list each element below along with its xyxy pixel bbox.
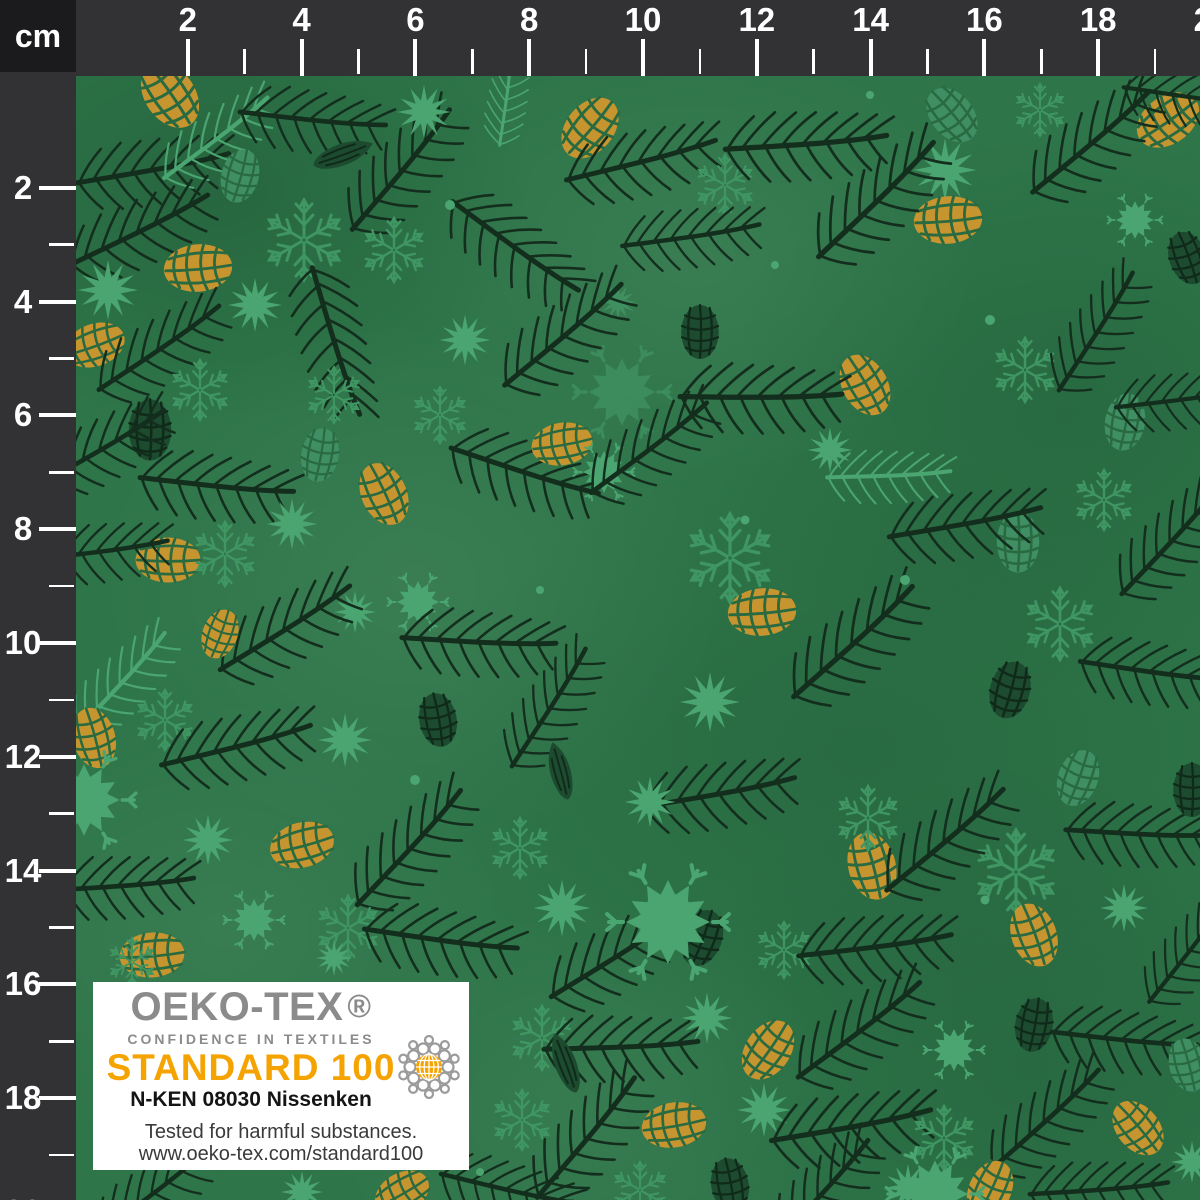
- motif-co: [76, 703, 122, 773]
- motif-fl: [1075, 470, 1134, 530]
- ruler-number: 18: [1063, 1, 1133, 39]
- motif-dt: [900, 575, 910, 585]
- motif-gr: [224, 892, 285, 949]
- motif-dt: [866, 91, 874, 99]
- motif-gr: [573, 347, 671, 438]
- motif-br: [822, 418, 962, 533]
- logo-loop: [409, 1085, 417, 1093]
- ruler-top: 2468101214161820: [0, 0, 1200, 76]
- ruler-tick-minor: [1040, 49, 1043, 74]
- ruler-tick-minor: [49, 1154, 74, 1157]
- motif-st: [440, 315, 491, 366]
- motif-co: [829, 346, 900, 425]
- motif-st: [1100, 884, 1148, 932]
- motif-br: [862, 769, 1035, 910]
- certification-label: OEKO-TEX® CONFIDENCE IN TEXTILES STANDAR…: [93, 982, 469, 1170]
- logo-loop: [451, 1071, 459, 1079]
- motif-co: [550, 87, 630, 170]
- motif-co: [1161, 226, 1200, 290]
- ruler-tick-minor: [471, 49, 474, 74]
- ruler-tick-minor: [926, 49, 929, 74]
- motif-br: [778, 962, 949, 1096]
- ruler-number: 8: [0, 510, 46, 548]
- motif-co: [912, 193, 984, 246]
- motif-fl: [194, 522, 257, 586]
- ruler-number: 4: [0, 283, 46, 321]
- ruler-tick-major: [641, 39, 645, 76]
- motif-fl: [696, 155, 755, 215]
- logo-loop: [399, 1055, 407, 1063]
- ruler-number: 10: [0, 624, 46, 662]
- motif-co: [1102, 1091, 1174, 1165]
- logo-loop: [441, 1041, 449, 1049]
- standard-title: STANDARD 100: [93, 1047, 409, 1089]
- motif-fl: [613, 1162, 668, 1200]
- motif-st: [267, 499, 318, 550]
- motif-co: [983, 657, 1037, 723]
- motif-dt: [985, 315, 995, 325]
- motif-co: [681, 305, 719, 359]
- motif-br: [1018, 255, 1180, 405]
- brand-name: OEKO-TEX: [131, 985, 344, 1029]
- ruler-tick-major: [413, 39, 417, 76]
- ruler-number: 14: [0, 852, 46, 890]
- motif-fl: [1015, 84, 1066, 136]
- ruler-number: 16: [949, 1, 1019, 39]
- ruler-tick-minor: [49, 926, 74, 929]
- ruler-tick-minor: [812, 49, 815, 74]
- logo-loop: [429, 1080, 440, 1091]
- motif-gr: [1108, 194, 1163, 245]
- logo-loop: [441, 1085, 449, 1093]
- ruler-number: 4: [267, 1, 337, 39]
- ruler-tick-major: [982, 39, 986, 76]
- brand-title: OEKO-TEX®: [93, 985, 409, 1030]
- motif-fl: [363, 218, 426, 282]
- logo-loop: [451, 1055, 459, 1063]
- motif-gr: [76, 752, 136, 849]
- logo-loop: [408, 1073, 419, 1084]
- ruler-number: 6: [0, 396, 46, 434]
- motif-co: [1173, 763, 1200, 817]
- motif-st: [334, 591, 376, 633]
- motif-co: [916, 78, 988, 152]
- logo-loop: [399, 1071, 407, 1079]
- ruler-number: 10: [608, 1, 678, 39]
- motif-dt: [445, 200, 455, 210]
- motif-dt: [476, 1168, 484, 1176]
- motif-co: [162, 241, 234, 294]
- motif-st: [1171, 1141, 1200, 1183]
- motif-st: [316, 940, 352, 976]
- tested-statement: Tested for harmful substances.: [93, 1121, 469, 1144]
- product-photo: 2468101214161820 2468101214161820 cm OEK…: [0, 0, 1200, 1200]
- motif-co: [195, 604, 245, 663]
- motif-fl: [837, 786, 900, 850]
- motif-fl: [265, 200, 343, 280]
- ruler-number: 6: [380, 1, 450, 39]
- motif-co: [638, 1097, 710, 1153]
- motif-st: [680, 672, 740, 732]
- ruler-tick-minor: [699, 49, 702, 74]
- ruler-number: 16: [0, 965, 46, 1003]
- ruler-tick-minor: [49, 1040, 74, 1043]
- motif-dt: [536, 586, 544, 594]
- motif-br: [765, 565, 949, 717]
- motif-co: [265, 815, 339, 875]
- motif-co: [129, 76, 211, 139]
- ruler-number: 8: [494, 1, 564, 39]
- ruler-tick-major: [1096, 39, 1100, 76]
- motif-fl: [136, 690, 195, 750]
- motif-st: [682, 993, 733, 1044]
- ruler-number: 14: [836, 1, 906, 39]
- logo-loop: [405, 1062, 416, 1073]
- motif-co: [415, 690, 461, 750]
- motif-br: [1043, 966, 1200, 1116]
- motif-dt: [981, 896, 990, 905]
- registered-mark: ®: [347, 988, 371, 1024]
- motif-co: [707, 1155, 753, 1200]
- ruler-tick-minor: [49, 357, 74, 360]
- logo-loop: [409, 1041, 417, 1049]
- logo-loop: [439, 1050, 450, 1061]
- oeko-tex-flower-logo: [397, 1035, 461, 1099]
- logo-loop: [425, 1090, 433, 1098]
- motif-st: [318, 713, 372, 767]
- motif-st: [78, 260, 138, 320]
- motif-br: [159, 687, 321, 806]
- ruler-tick-minor: [1154, 49, 1157, 74]
- ruler-number: 2: [153, 1, 223, 39]
- motif-dt: [741, 516, 750, 525]
- ruler-tick-major: [300, 39, 304, 76]
- motif-dt: [410, 775, 420, 785]
- ruler-number: 18: [0, 1079, 46, 1117]
- ruler-tick-minor: [243, 49, 246, 74]
- motif-co: [1011, 995, 1057, 1055]
- motif-br: [459, 76, 555, 151]
- certification-url: www.oeko-tex.com/standard100: [93, 1143, 469, 1166]
- motif-st: [534, 880, 591, 937]
- motif-co: [731, 1011, 805, 1090]
- ruler-tick-minor: [49, 812, 74, 815]
- motif-st: [808, 428, 853, 473]
- motif-st: [914, 139, 977, 202]
- motif-br: [572, 383, 734, 511]
- motif-st: [183, 815, 234, 866]
- brand-tagline: CONFIDENCE IN TEXTILES: [93, 1031, 409, 1047]
- motif-fl: [413, 387, 468, 443]
- motif-fl: [493, 1090, 552, 1150]
- motif-co: [1100, 390, 1149, 454]
- ruler-number: 2: [0, 169, 46, 207]
- ruler-tick-major: [869, 39, 873, 76]
- motif-fl: [994, 338, 1057, 402]
- motif-dt: [771, 261, 779, 269]
- ruler-tick-minor: [357, 49, 360, 74]
- motif-st: [397, 85, 451, 139]
- motif-lf: [543, 739, 578, 802]
- motif-st: [281, 1171, 323, 1200]
- ruler-tick-minor: [585, 49, 588, 74]
- ruler-tick-minor: [49, 585, 74, 588]
- certificate-number: N-KEN 08030 Nissenken: [93, 1088, 409, 1112]
- logo-loop: [425, 1036, 433, 1044]
- ruler-number: 12: [722, 1, 792, 39]
- motif-fl: [491, 818, 550, 878]
- motif-st: [625, 777, 676, 828]
- motif-st: [228, 278, 282, 332]
- ruler-tick-major: [755, 39, 759, 76]
- ruler-number: 20: [0, 1193, 46, 1200]
- unit-box: cm: [0, 0, 76, 72]
- ruler-tick-major: [527, 39, 531, 76]
- unit-label: cm: [15, 18, 61, 55]
- motif-lf: [544, 1030, 586, 1097]
- ruler-left: 2468101214161820: [0, 0, 76, 1200]
- motif-co: [1049, 744, 1106, 812]
- ruler-number: 20: [1177, 1, 1200, 39]
- motif-fl: [913, 1106, 976, 1170]
- ruler-tick-minor: [49, 699, 74, 702]
- motif-fl: [171, 360, 230, 420]
- motif-br: [1071, 596, 1200, 749]
- ruler-tick-minor: [49, 243, 74, 246]
- motif-gr: [924, 1022, 985, 1079]
- motif-st: [737, 1083, 791, 1137]
- motif-co: [350, 455, 418, 533]
- logo-loop: [418, 1043, 429, 1054]
- ruler-tick-major: [186, 39, 190, 76]
- ruler-tick-minor: [49, 471, 74, 474]
- motif-br: [279, 266, 391, 424]
- ruler-number: 12: [0, 738, 46, 776]
- motif-fl: [1025, 588, 1095, 660]
- logo-loop: [443, 1062, 454, 1073]
